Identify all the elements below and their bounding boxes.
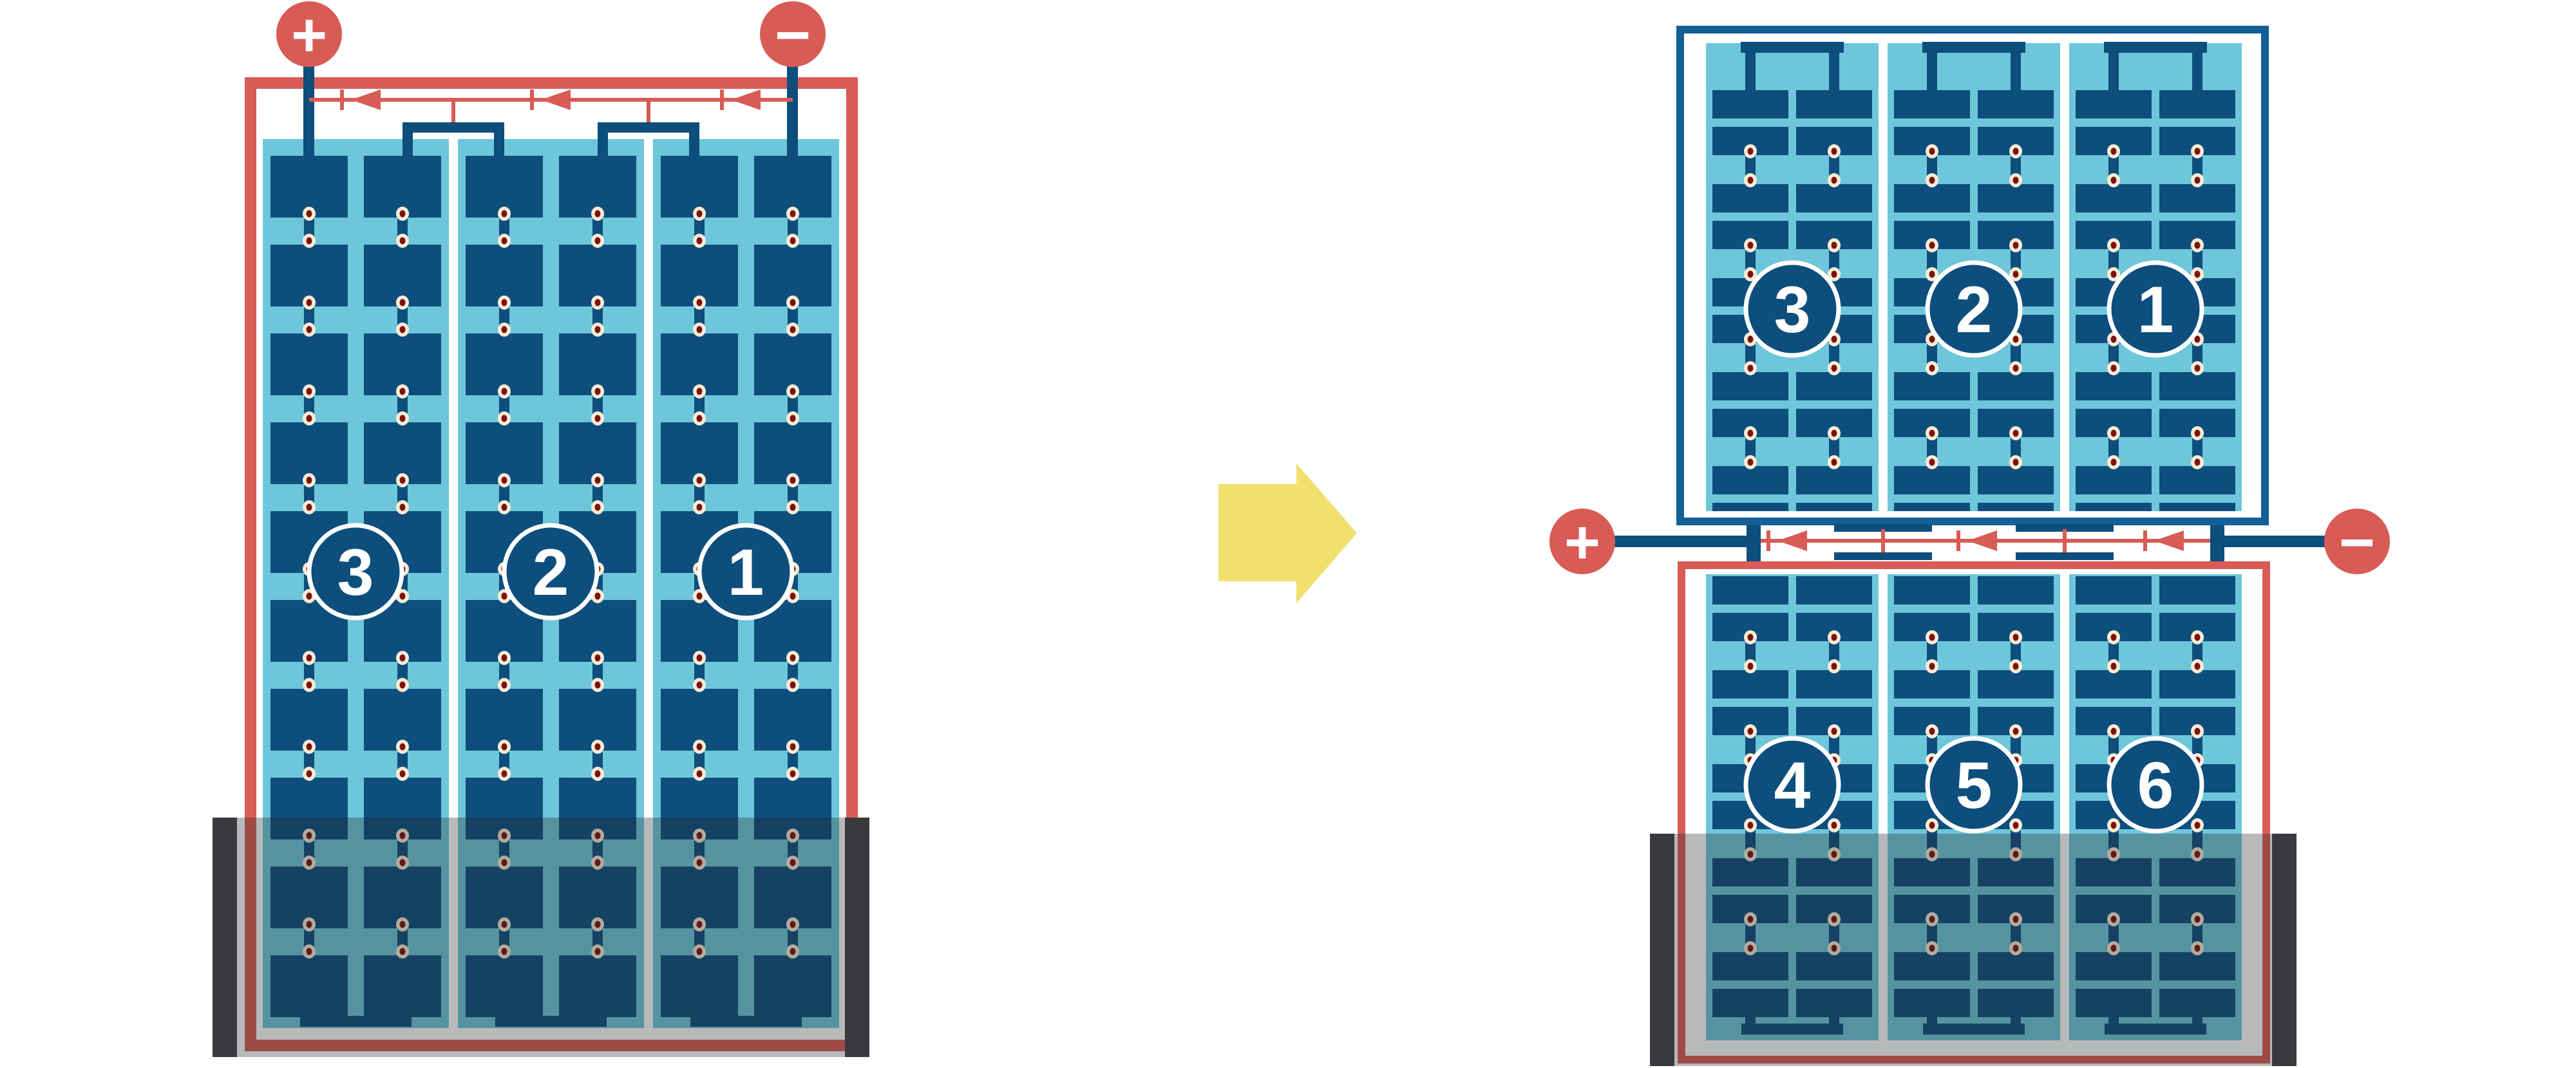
solder-dot-core — [790, 682, 796, 689]
solar-cell — [2076, 670, 2152, 698]
solder-dot-core — [790, 504, 796, 511]
solder-dot-core — [2013, 430, 2019, 437]
connector-leg — [689, 133, 699, 166]
solder-dot-core — [400, 299, 406, 306]
solder-dot-core — [502, 477, 507, 484]
solder-dot-core — [1748, 634, 1754, 641]
solder-dot-core — [697, 388, 703, 395]
diode-junction-drop — [2063, 529, 2067, 552]
solder-dot-core — [2111, 365, 2117, 372]
solder-dot-core — [400, 326, 406, 333]
solar-cell — [1712, 576, 1788, 604]
solder-dot-core — [307, 238, 312, 245]
solar-cell — [2159, 90, 2235, 118]
solder-dot-core — [307, 415, 312, 422]
solder-dot-core — [790, 326, 796, 333]
solar-cell — [1712, 184, 1788, 212]
diode-cathode-bar — [720, 89, 724, 110]
solar-cell — [2159, 670, 2235, 698]
solar-cell — [1712, 90, 1788, 118]
solar-cell — [2076, 372, 2152, 400]
solder-dot-core — [595, 238, 601, 245]
solder-dot-core — [697, 299, 703, 306]
connector-leg — [402, 133, 413, 166]
solder-dot-core — [697, 238, 703, 245]
solder-dot-core — [307, 504, 312, 511]
solar-cell — [1894, 670, 1970, 698]
junction-wiring — [1582, 524, 2357, 561]
solder-dot-core — [502, 593, 507, 600]
negative-terminal-glyph: − — [2339, 508, 2375, 577]
connector-bar — [402, 122, 504, 133]
solder-dot-core — [2013, 459, 2019, 466]
solar-cell — [1978, 466, 2054, 494]
solder-dot-core — [400, 388, 406, 395]
string-number-label: 3 — [337, 536, 374, 609]
solder-dot-core — [1929, 177, 1935, 184]
solder-dot-core — [697, 415, 703, 422]
solder-dot-core — [307, 771, 312, 778]
solder-dot-core — [1748, 365, 1754, 372]
diode-triangle — [1777, 530, 1807, 551]
panel-wiring-diagram: +−321321456+− — [0, 0, 2576, 1068]
solder-dot-core — [2195, 271, 2201, 278]
solar-cell — [1796, 670, 1872, 698]
solder-dot-core — [1832, 728, 1837, 735]
solder-dot-core — [2195, 459, 2201, 466]
solder-dot-core — [1748, 148, 1754, 155]
solar-cell — [1894, 372, 1970, 400]
solder-dot-core — [790, 477, 796, 484]
connector-bar — [1922, 42, 2025, 53]
shade-edge-bar — [2272, 834, 2297, 1066]
solar-cell — [1796, 576, 1872, 604]
solder-dot-core — [2111, 663, 2117, 670]
solder-dot-core — [400, 477, 406, 484]
solder-dot-core — [790, 211, 796, 218]
solder-dot-core — [595, 744, 601, 751]
solder-dot-core — [502, 211, 507, 218]
solder-dot-core — [595, 655, 601, 662]
solder-dot-core — [697, 211, 703, 218]
solder-dot-core — [2013, 242, 2019, 249]
diode-triangle — [1967, 530, 1997, 551]
solder-dot-core — [2195, 822, 2201, 829]
solder-dot-core — [307, 326, 312, 333]
diode-triangle — [731, 89, 761, 110]
solder-dot-core — [1929, 728, 1935, 735]
negative-terminal: − — [760, 1, 826, 70]
shade-edge-bar — [213, 818, 237, 1057]
solder-dot-core — [2111, 271, 2117, 278]
string-number-label: 4 — [1774, 749, 1811, 822]
solder-dot-core — [1832, 663, 1837, 670]
solar-cell — [1978, 576, 2054, 604]
solder-dot-core — [502, 771, 507, 778]
diode-triangle — [2154, 530, 2184, 551]
solder-dot-core — [1748, 242, 1754, 249]
solar-cell — [1796, 372, 1872, 400]
solder-dot-core — [790, 299, 796, 306]
diode-cathode-bar — [1956, 530, 1960, 551]
solder-dot-core — [1929, 822, 1935, 829]
shade-overlay — [213, 818, 869, 1057]
solder-dot-core — [595, 388, 601, 395]
solder-dot-core — [1929, 634, 1935, 641]
connector-leg — [598, 133, 608, 166]
solar-cell — [1978, 90, 2054, 118]
solder-dot-core — [697, 504, 703, 511]
solar-cell — [1712, 670, 1788, 698]
solder-dot-core — [790, 771, 796, 778]
string-number-badge: 1 — [2109, 263, 2202, 355]
solder-dot-core — [697, 744, 703, 751]
solar-cell — [2159, 184, 2235, 212]
solder-dot-core — [307, 211, 312, 218]
string-divider — [2060, 43, 2069, 511]
solder-dot-core — [2195, 728, 2201, 735]
connector-leg — [1927, 53, 1937, 94]
solder-dot-core — [1929, 148, 1935, 155]
string-number-badge: 2 — [504, 525, 597, 618]
solder-dot-core — [2195, 148, 2201, 155]
before-panel-diagram: +−321 — [213, 1, 869, 1057]
solar-cell — [1712, 372, 1788, 400]
solder-dot-core — [1929, 459, 1935, 466]
string-number-label: 6 — [2137, 749, 2174, 822]
shade-edge-bar — [845, 818, 869, 1057]
solder-dot-core — [595, 211, 601, 218]
solder-dot-core — [2013, 634, 2019, 641]
solder-dot-core — [1832, 271, 1837, 278]
solder-dot-core — [502, 326, 507, 333]
solder-dot-core — [1748, 271, 1754, 278]
solder-dot-core — [2195, 663, 2201, 670]
string-number-badge: 3 — [309, 525, 402, 618]
solar-cell — [1978, 372, 2054, 400]
solder-dot-core — [502, 299, 507, 306]
solder-dot-core — [400, 238, 406, 245]
inter-panel-tab-lower — [1834, 552, 1932, 560]
solder-dot-core — [2013, 271, 2019, 278]
solder-dot-core — [1832, 430, 1837, 437]
connector-leg — [494, 133, 504, 166]
solar-cell — [2159, 372, 2235, 400]
solder-dot-core — [307, 682, 312, 689]
solder-dot-core — [2195, 365, 2201, 372]
diode-junction-drop — [1881, 529, 1885, 552]
solder-dot-core — [2195, 177, 2201, 184]
solder-dot-core — [790, 238, 796, 245]
shade-edge-bar — [1650, 834, 1674, 1066]
solder-dot-core — [1748, 177, 1754, 184]
solder-dot-core — [307, 477, 312, 484]
solder-dot-core — [595, 771, 601, 778]
string-number-label: 5 — [1956, 749, 1993, 822]
diagram-canvas: +−321321456+− — [0, 0, 2576, 1068]
string-number-badge: 2 — [1927, 263, 2020, 355]
solder-dot-core — [1832, 177, 1837, 184]
connector-leg — [2011, 53, 2021, 94]
solder-dot-core — [502, 238, 507, 245]
diode-cathode-bar — [1766, 530, 1770, 551]
solder-dot-core — [697, 682, 703, 689]
solder-dot-core — [697, 326, 703, 333]
solder-dot-core — [400, 655, 406, 662]
solar-cell — [1894, 576, 1970, 604]
solar-cell — [2076, 576, 2152, 604]
solder-dot-core — [502, 655, 507, 662]
solder-dot-core — [1832, 365, 1837, 372]
solder-dot-core — [697, 477, 703, 484]
solar-cell — [2159, 576, 2235, 604]
diode-cathode-bar — [2143, 530, 2147, 551]
solar-cell — [1796, 184, 1872, 212]
solder-dot-core — [2013, 822, 2019, 829]
connector-bar — [1741, 42, 1844, 53]
solar-cell — [2076, 90, 2152, 118]
solder-dot-core — [1929, 365, 1935, 372]
solder-dot-core — [2013, 177, 2019, 184]
solder-dot-core — [595, 593, 601, 600]
diode-cathode-bar — [530, 89, 534, 110]
solder-dot-core — [307, 299, 312, 306]
string-number-label: 2 — [1956, 273, 1993, 346]
solar-cell — [2076, 184, 2152, 212]
solder-dot-core — [595, 504, 601, 511]
solder-dot-core — [595, 477, 601, 484]
connector-bar — [2104, 42, 2207, 53]
solder-dot-core — [2013, 148, 2019, 155]
solder-dot-core — [2111, 459, 2117, 466]
solder-dot-core — [400, 211, 406, 218]
solder-dot-core — [1832, 148, 1837, 155]
solder-dot-core — [697, 593, 703, 600]
solder-dot-core — [307, 655, 312, 662]
shade-band — [213, 818, 869, 1057]
string-number-label: 2 — [533, 536, 569, 609]
solder-dot-core — [697, 771, 703, 778]
solder-dot-core — [400, 415, 406, 422]
connector-bar — [598, 122, 699, 133]
solar-cell — [2159, 466, 2235, 494]
solder-dot-core — [1748, 728, 1754, 735]
solder-dot-core — [2195, 634, 2201, 641]
solder-dot-core — [2111, 634, 2117, 641]
bypass-diode-bus — [309, 89, 793, 125]
solder-dot-core — [1929, 242, 1935, 249]
solder-dot-core — [697, 655, 703, 662]
solar-cell — [1712, 466, 1788, 494]
shade-band — [1650, 834, 2297, 1066]
solder-dot-core — [790, 415, 796, 422]
solder-dot-core — [1929, 430, 1935, 437]
diode-cathode-bar — [340, 89, 344, 110]
solder-dot-core — [400, 504, 406, 511]
solder-dot-core — [400, 593, 406, 600]
solder-dot-core — [595, 682, 601, 689]
junction-vertical-bar — [1747, 525, 1761, 561]
solder-dot-core — [502, 388, 507, 395]
string-number-badge: 6 — [2109, 738, 2202, 831]
positive-terminal-glyph: + — [1564, 508, 1600, 577]
solar-cell — [2076, 466, 2152, 494]
string-number-badge: 5 — [1927, 738, 2020, 831]
string-number-label: 3 — [1774, 273, 1811, 346]
solder-dot-core — [790, 593, 796, 600]
positive-terminal-wire — [303, 64, 314, 190]
string-number-label: 1 — [2137, 273, 2174, 346]
solar-cell — [1978, 670, 2054, 698]
diode-triangle — [351, 89, 381, 110]
solar-cell — [1796, 466, 1872, 494]
solder-dot-core — [2195, 242, 2201, 249]
solder-dot-core — [502, 415, 507, 422]
solder-dot-core — [1832, 242, 1837, 249]
positive-terminal: + — [276, 1, 342, 70]
after-top-panel: 321 — [1680, 30, 2265, 531]
solar-cell — [1894, 466, 1970, 494]
solder-dot-core — [502, 504, 507, 511]
solder-dot-core — [1748, 822, 1754, 829]
solar-cell — [1894, 90, 1970, 118]
positive-terminal-glyph: + — [291, 1, 327, 70]
diode-triangle — [541, 89, 571, 110]
string-number-badge: 1 — [699, 525, 792, 618]
solder-dot-core — [307, 593, 312, 600]
solder-dot-core — [790, 655, 796, 662]
solar-cell — [1978, 184, 2054, 212]
diode-junction-drop — [647, 98, 650, 125]
inter-panel-tab-lower — [2016, 552, 2114, 560]
solder-dot-core — [1832, 822, 1837, 829]
solder-dot-core — [1748, 459, 1754, 466]
solder-dot-core — [1748, 663, 1754, 670]
shade-overlay — [1650, 834, 2297, 1066]
string-number-badge: 4 — [1746, 738, 1839, 831]
solder-dot-core — [2013, 663, 2019, 670]
transform-arrow — [1218, 464, 1357, 603]
solder-dot-core — [307, 744, 312, 751]
solder-dot-core — [2111, 242, 2117, 249]
solder-dot-core — [400, 744, 406, 751]
negative-terminal-wire — [787, 64, 798, 190]
solder-dot-core — [2111, 728, 2117, 735]
junction-vertical-bar — [2210, 525, 2224, 561]
solder-dot-core — [2111, 148, 2117, 155]
connector-leg — [1829, 53, 1839, 94]
solder-dot-core — [2013, 365, 2019, 372]
solder-dot-core — [1748, 430, 1754, 437]
solder-dot-core — [502, 682, 507, 689]
positive-terminal: + — [1549, 508, 1615, 577]
diode-junction-drop — [451, 98, 455, 125]
string-number-badge: 3 — [1746, 263, 1839, 355]
solder-dot-core — [595, 326, 601, 333]
solder-dot-core — [400, 771, 406, 778]
solder-dot-core — [307, 388, 312, 395]
solder-dot-core — [595, 299, 601, 306]
after-panel-diagrams: 321456+− — [1549, 30, 2390, 1066]
solar-cell — [1796, 90, 1872, 118]
solder-dot-core — [1929, 663, 1935, 670]
solder-dot-core — [595, 415, 601, 422]
connector-leg — [2108, 53, 2119, 94]
connector-leg — [1745, 53, 1756, 94]
string-number-label: 1 — [728, 536, 764, 609]
solder-dot-core — [2195, 430, 2201, 437]
negative-terminal: − — [2324, 508, 2390, 577]
solder-dot-core — [1929, 271, 1935, 278]
connector-leg — [2192, 53, 2202, 94]
solder-dot-core — [1832, 634, 1837, 641]
solder-dot-core — [1832, 459, 1837, 466]
solder-dot-core — [2111, 430, 2117, 437]
solder-dot-core — [2111, 177, 2117, 184]
solder-dot-core — [790, 744, 796, 751]
string-divider — [1879, 43, 1888, 511]
solder-dot-core — [2013, 728, 2019, 735]
negative-terminal-glyph: − — [775, 1, 811, 70]
solder-dot-core — [502, 744, 507, 751]
solder-dot-core — [400, 682, 406, 689]
solder-dot-core — [790, 388, 796, 395]
solar-cell — [1894, 184, 1970, 212]
solder-dot-core — [2111, 822, 2117, 829]
